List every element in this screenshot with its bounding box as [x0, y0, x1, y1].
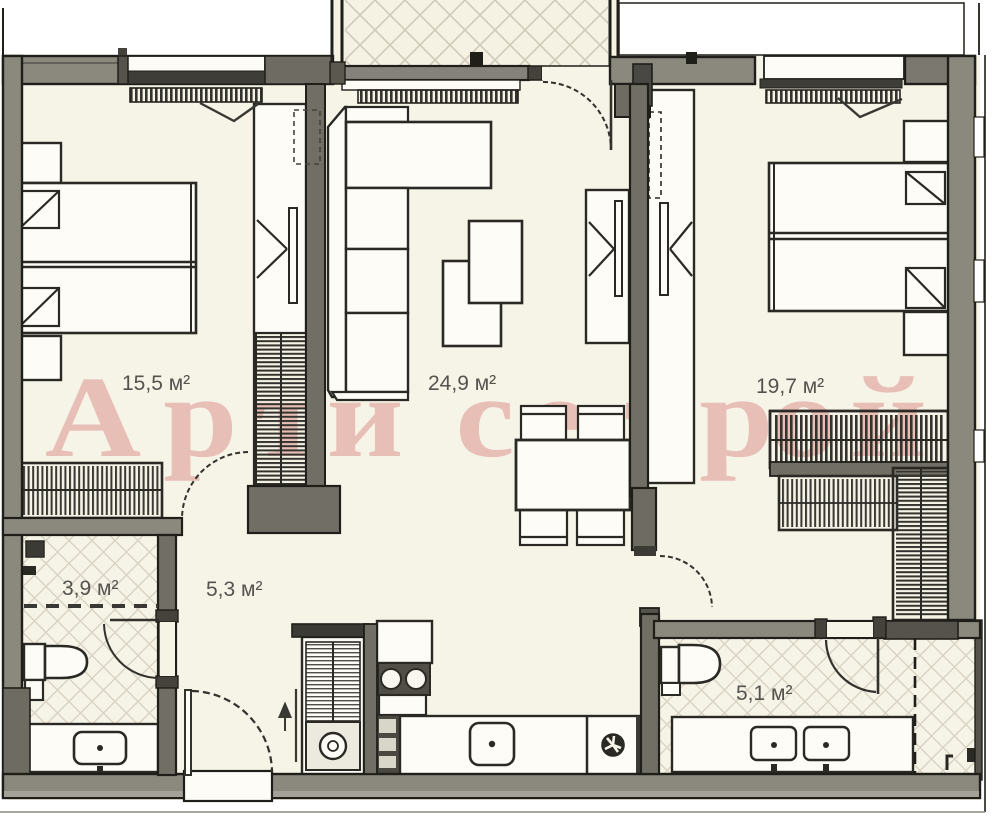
svg-text:3,9 м²: 3,9 м² [62, 577, 118, 600]
svg-text:5,1 м²: 5,1 м² [736, 682, 792, 705]
svg-text:15,5 м²: 15,5 м² [122, 372, 190, 395]
svg-text:19,7 м²: 19,7 м² [756, 375, 824, 398]
svg-text:24,9 м²: 24,9 м² [428, 372, 496, 395]
svg-text:5,3 м²: 5,3 м² [206, 578, 262, 601]
